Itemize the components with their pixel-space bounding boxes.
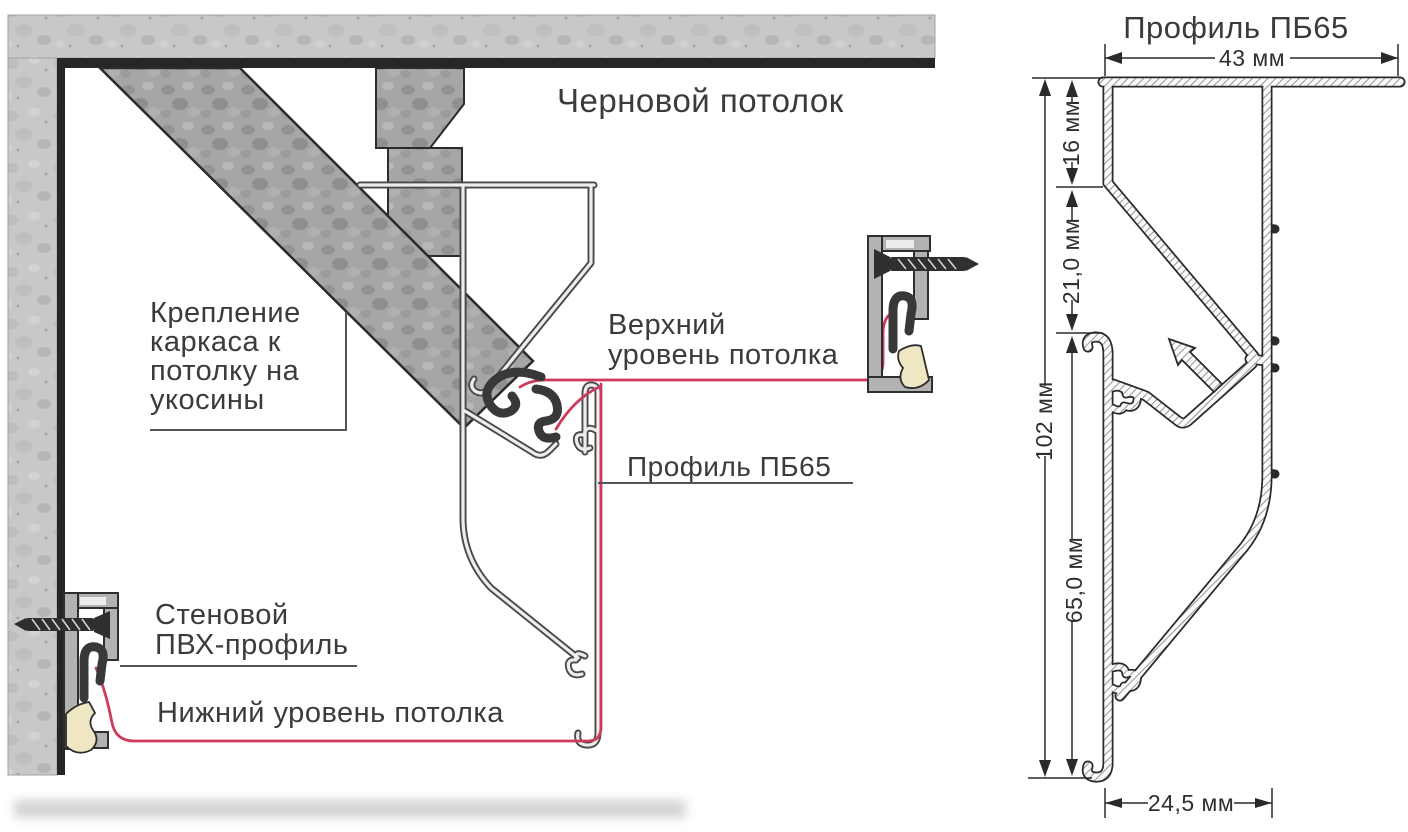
- ceiling-hanger-bracket: [376, 68, 464, 148]
- dim-total-height: 102 мм: [1031, 381, 1057, 460]
- svg-text:каркаса к: каркаса к: [150, 326, 281, 358]
- svg-text:Крепление: Крепление: [150, 297, 301, 329]
- lower-level-label: Нижний уровень потолка: [157, 697, 504, 729]
- profile-walls: [1087, 82, 1400, 777]
- svg-text:Верхний: Верхний: [608, 309, 726, 341]
- dim-bottom-width: 24,5 мм: [1148, 790, 1234, 816]
- harpoon-clip-bottom: [84, 647, 103, 698]
- frame-mount-label: Крепление каркаса к потолку на укосины: [150, 297, 301, 416]
- decor-insert-bottom: [66, 702, 97, 753]
- profile-callout-label: Профиль ПБ65: [627, 451, 831, 482]
- svg-text:потолку на: потолку на: [150, 355, 300, 387]
- floor-shadow: [14, 800, 686, 818]
- insertion-direction-arrow: [1169, 339, 1222, 392]
- membrane-pocket-wrap: [556, 387, 599, 429]
- wall-profile-label: Стеновой ПВХ-профиль: [155, 599, 348, 661]
- svg-text:укосины: укосины: [150, 384, 265, 416]
- dim-middle-height: 21,0 мм: [1058, 218, 1084, 304]
- svg-text:ПВХ-профиль: ПВХ-профиль: [155, 629, 348, 661]
- dimension-arrowheads: [1039, 52, 1398, 808]
- rough-ceiling-slab: [8, 15, 935, 58]
- diagram-page: Черновой потолок Крепление каркаса к пот…: [0, 0, 1408, 832]
- harpoon-clip-top: [893, 296, 912, 349]
- svg-text:Стеновой: Стеновой: [155, 599, 289, 631]
- decor-insert-top: [898, 345, 929, 388]
- profile-drawing: Профиль ПБ65: [1028, 10, 1400, 818]
- dim-upper-height: 16 мм: [1058, 100, 1084, 166]
- upper-level-label: Верхний уровень потолка: [608, 309, 839, 371]
- installation-diagram: Черновой потолок Крепление каркаса к пот…: [8, 15, 979, 818]
- diagram-canvas: Черновой потолок Крепление каркаса к пот…: [0, 0, 1408, 832]
- rough-ceiling-label: Черновой потолок: [557, 82, 844, 119]
- screw-slot: [886, 240, 914, 248]
- profile-drawing-title: Профиль ПБ65: [1123, 10, 1349, 45]
- svg-text:уровень потолка: уровень потолка: [608, 339, 839, 371]
- concrete-wall: [8, 15, 57, 775]
- membrane-lower-level: [96, 384, 601, 741]
- dim-top-width: 43 мм: [1219, 45, 1285, 71]
- ceiling-wall-edge: [57, 58, 935, 775]
- dim-lower-height: 65,0 мм: [1061, 537, 1087, 623]
- screw-slot: [80, 597, 106, 605]
- wall-pvc-profile-top: [868, 236, 979, 392]
